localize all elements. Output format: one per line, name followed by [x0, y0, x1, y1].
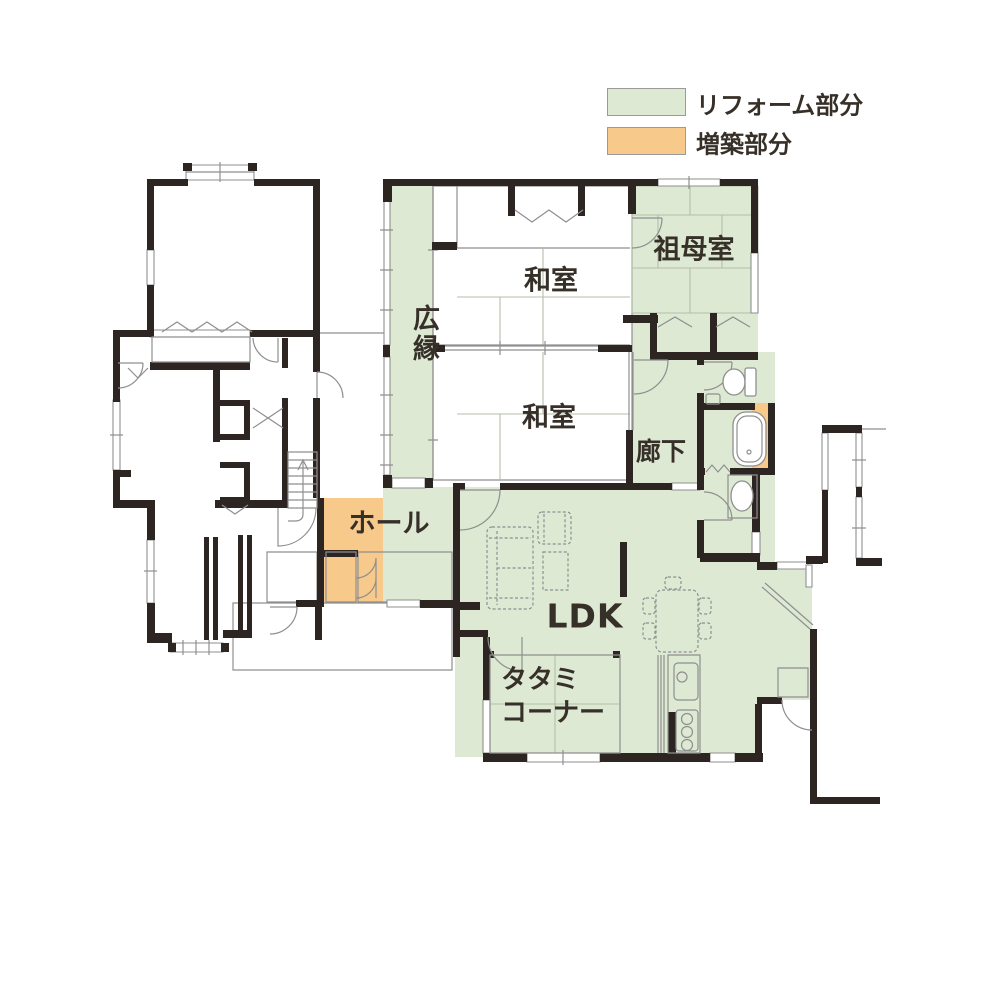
old-genkan-door-arc — [278, 508, 316, 546]
bathtub-icon — [733, 412, 766, 466]
room-door-arc — [118, 363, 143, 388]
oshiire-chevrons-washitsu — [515, 210, 583, 222]
legend-swatch-reform — [607, 88, 686, 116]
dining-nook-area — [757, 565, 812, 700]
legend-swatch-extension — [607, 127, 686, 155]
legend-label-extension: 増築部分 — [696, 125, 792, 160]
floor-plan-page: 広縁 和室 和室 祖母室 廊下 ホール LDK タタミ コーナー リフォーム部分… — [0, 0, 1000, 1000]
washitsu-block-outline — [433, 186, 632, 480]
side-door-arc — [317, 372, 343, 398]
fusuma-track — [445, 341, 598, 355]
legend-label-reform: リフォーム部分 — [696, 86, 863, 121]
room-label-washitsu-upper: 和室 — [524, 259, 578, 298]
kitchen-back-door-arc — [782, 700, 812, 730]
stairs-icon — [288, 452, 317, 521]
room-label-tatami-corner: タタミ コーナー — [501, 664, 605, 729]
corridor-fusuma — [629, 352, 633, 430]
room-label-washitsu-lower: 和室 — [522, 396, 576, 435]
floor-plan-drawing — [0, 0, 1000, 1000]
closet-chevrons — [128, 368, 248, 514]
room-label-ldk: LDK — [547, 597, 624, 636]
tile-old-genkan — [267, 552, 317, 602]
hallway-door-arc — [253, 338, 278, 362]
room-label-rouka: 廊下 — [636, 432, 686, 468]
closet-box — [152, 337, 250, 362]
room-label-sobo: 祖母室 — [654, 228, 735, 267]
room-label-hiroen: 広縁 — [404, 304, 443, 364]
fusuma-marks — [253, 408, 283, 428]
porch-base — [233, 603, 452, 670]
room-label-hall: ホール — [349, 502, 430, 541]
